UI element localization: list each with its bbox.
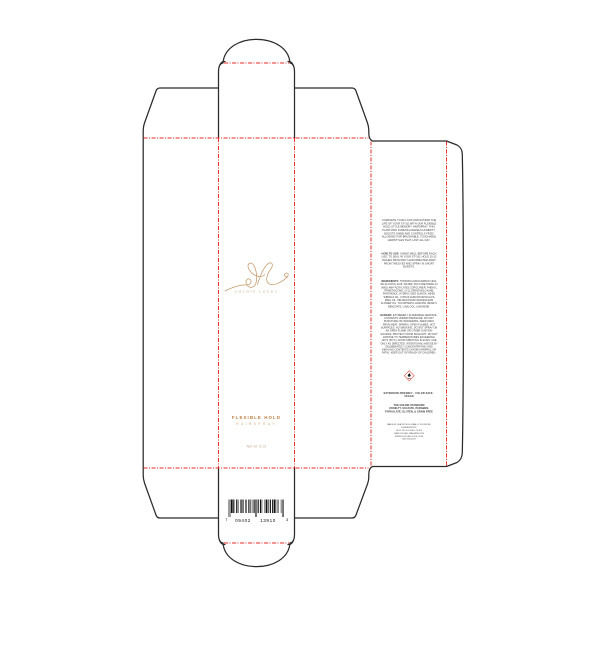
logo-script-gl	[225, 263, 288, 291]
footer-line: 855-910-4247	[380, 438, 438, 441]
danger-text: EXTREMELY FLAMMABLE AEROSOL. CONTENTS UN…	[380, 314, 437, 355]
net-weight: Net wt. 5 oz	[206, 445, 307, 449]
hazard-icon-row	[380, 370, 438, 384]
cut-line-top-tuck-flap	[219, 39, 295, 138]
standard-line2: PHTHALATE, GLUTEN, & GRAIN FREE	[380, 411, 438, 414]
barcode-digit-left: 7	[225, 517, 228, 522]
dieline-drawing	[0, 0, 600, 600]
flammable-diamond-icon	[403, 370, 415, 382]
front-logo-name-wrap: GOLDIE LOCKS	[206, 290, 408, 297]
description-paragraph: COMPLETE YOUR LOOK AND EXTEND THE LIFE O…	[380, 219, 438, 242]
footer-block: MADE IN USA WITH GLOBALLY SOURCED INGRED…	[380, 423, 438, 441]
barcode-group1: 09402	[235, 518, 251, 523]
how-to-use-paragraph: HOW TO USE: SHAKE WELL BEFORE EACH USE. …	[380, 252, 438, 269]
how-to-use-text: SHAKE WELL BEFORE EACH USE. TO SEAL IN Y…	[382, 252, 437, 268]
cut-line-left-edge	[143, 88, 218, 518]
net-weight-wrap: Net wt. 5 oz	[206, 445, 408, 452]
claims-line: EXTENSION FRIENDLY · COLOR SAFE · VEGAN	[380, 392, 438, 398]
danger-paragraph: DANGER: EXTREMELY FLAMMABLE AEROSOL. CON…	[380, 314, 438, 355]
upc-barcode: 7 09402 13910 3	[224, 497, 290, 524]
ingredients-text: HYDROFLUOROCARBON 152A, SD ALCOHOL 40-B,…	[381, 280, 438, 308]
back-panel-column: COMPLETE YOUR LOOK AND EXTEND THE LIFE O…	[380, 219, 438, 662]
packaging-dieline-page: { "brand": { "logo_monogram": "gl", "log…	[0, 0, 600, 600]
barcode-group2: 13910	[260, 518, 276, 523]
goldie-standard-block: THE GOLDIE STANDARD CRUELTY, SULFATE, PA…	[380, 404, 438, 414]
front-product-wrap: FLEXIBLE HOLD HAIRSPRAY	[206, 415, 408, 437]
product-name: FLEXIBLE HOLD	[206, 415, 307, 420]
barcode-digit-right: 3	[286, 517, 289, 522]
cut-line-right-edge	[295, 88, 464, 518]
ingredients-paragraph: INGREDIENTS: HYDROFLUOROCARBON 152A, SD …	[380, 280, 438, 308]
product-type: HAIRSPRAY	[206, 423, 307, 427]
barcode-bars: 7 09402 13910 3	[224, 497, 290, 524]
brand-name: GOLDIE LOCKS	[206, 290, 307, 294]
